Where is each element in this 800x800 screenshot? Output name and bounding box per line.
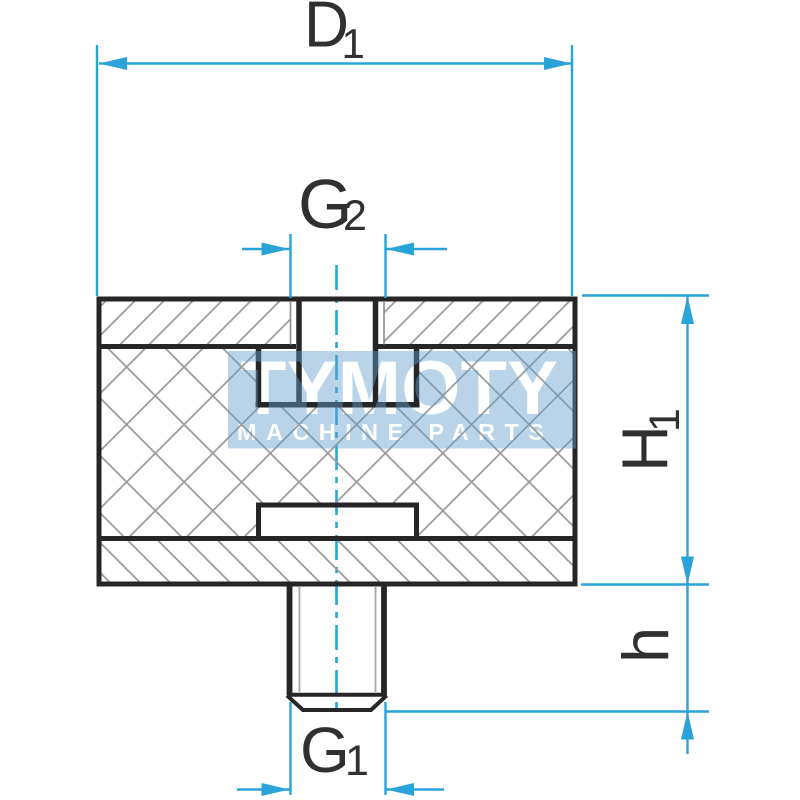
svg-text:1: 1: [345, 737, 369, 785]
svg-text:1: 1: [641, 408, 689, 432]
svg-text:h: h: [609, 627, 682, 663]
svg-text:G: G: [300, 714, 350, 786]
svg-text:2: 2: [343, 192, 367, 240]
svg-text:1: 1: [342, 20, 365, 67]
